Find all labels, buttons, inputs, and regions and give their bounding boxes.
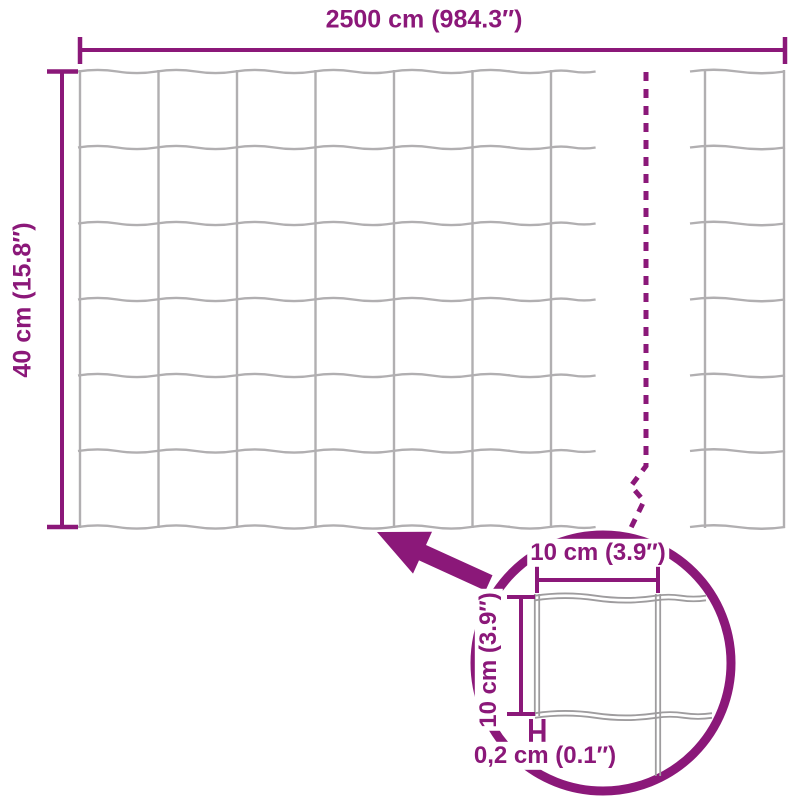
cell-height-label: 10 cm (3.9″) [475,589,503,731]
product-dimension-diagram: 2500 cm (984.3″) 40 cm (15.8″) 10 cm (3.… [0,0,800,800]
diagram-canvas [0,0,800,800]
wire-thickness-label: 0,2 cm (0.1″) [471,742,619,770]
total-width-label: 2500 cm (984.3″) [326,6,523,34]
break-line [617,72,646,562]
mesh-panel-continuation [690,70,785,529]
total-height-label: 40 cm (15.8″) [9,222,37,377]
width-dimension-line [80,37,785,64]
height-dimension-line [47,72,78,528]
cell-width-label: 10 cm (3.9″) [527,539,669,567]
zoom-arrow-icon [377,532,493,591]
mesh-panel [78,70,596,529]
